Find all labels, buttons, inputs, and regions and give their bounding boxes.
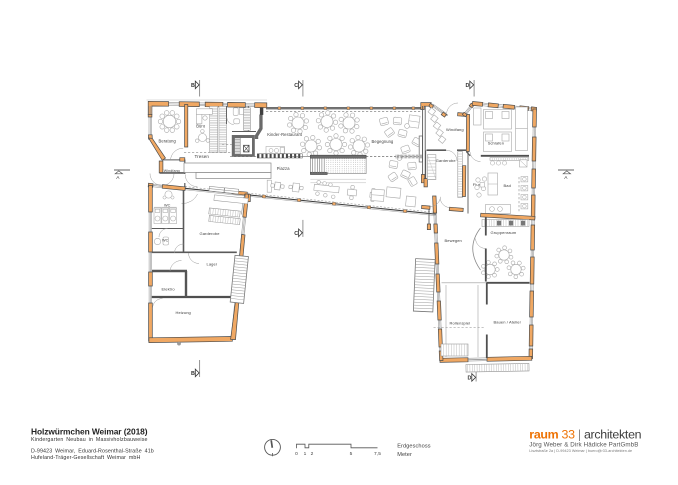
svg-text:Windfang: Windfang	[446, 127, 464, 132]
svg-text:Hufeland-Träger-Gesellschaft: Hufeland-Träger-Gesellschaft Weimar mbH	[31, 455, 140, 461]
svg-text:Lisztstraße 2a | D-99423 Weima: Lisztstraße 2a | D-99423 Weimar | buero@…	[529, 449, 632, 453]
svg-text:raum 33 | architekten: raum 33 | architekten	[529, 427, 641, 441]
svg-text:Holzwürmchen Weimar (2018): Holzwürmchen Weimar (2018)	[31, 426, 148, 436]
svg-text:2: 2	[311, 451, 314, 457]
svg-text:Bewegen: Bewegen	[445, 238, 462, 243]
svg-text:Jörg Weber & Dirk Hädicke Part: Jörg Weber & Dirk Hädicke PartGmbB	[529, 441, 638, 448]
svg-text:Bauen / Atelier: Bauen / Atelier	[494, 319, 522, 324]
svg-text:Meter: Meter	[397, 452, 412, 458]
svg-text:Rollenspiel: Rollenspiel	[450, 320, 471, 325]
svg-text:Begegnung: Begegnung	[372, 139, 394, 144]
svg-text:Windfang: Windfang	[164, 169, 180, 173]
svg-text:D: D	[466, 83, 470, 89]
svg-text:C: C	[294, 83, 298, 89]
svg-text:Garderobe: Garderobe	[200, 231, 221, 236]
svg-text:WC: WC	[164, 203, 171, 207]
svg-text:Kinder-Restaurant: Kinder-Restaurant	[267, 132, 303, 137]
svg-text:Schlafen: Schlafen	[488, 141, 504, 146]
svg-text:Garderobe: Garderobe	[436, 158, 457, 163]
svg-text:WC: WC	[162, 239, 169, 243]
svg-text:B: B	[191, 371, 195, 377]
svg-text:Büro: Büro	[196, 124, 206, 129]
svg-text:5: 5	[350, 451, 353, 457]
svg-text:1: 1	[304, 451, 307, 457]
svg-text:Beratung: Beratung	[159, 138, 177, 143]
svg-text:Piazza: Piazza	[277, 166, 291, 171]
svg-text:0: 0	[295, 451, 298, 457]
svg-text:Kindergarten Neubau in Massivh: Kindergarten Neubau in Massivholzbauweis…	[31, 437, 148, 443]
svg-text:D: D	[468, 376, 472, 382]
svg-text:Gruppenraum: Gruppenraum	[491, 230, 517, 235]
svg-text:7,5: 7,5	[374, 451, 381, 457]
svg-text:Heizung: Heizung	[176, 310, 191, 315]
svg-text:B: B	[191, 83, 195, 89]
svg-text:Lager: Lager	[207, 261, 218, 266]
svg-text:D-99423 Weimar, Eduard-Rosen: D-99423 Weimar, Eduard-Rosenthal-Straße …	[31, 448, 154, 454]
svg-text:Elektro: Elektro	[162, 287, 176, 292]
svg-text:Bad: Bad	[504, 183, 511, 188]
svg-text:C: C	[294, 231, 298, 237]
svg-text:Erdgeschoss: Erdgeschoss	[397, 443, 431, 449]
svg-text:Tresen: Tresen	[195, 154, 210, 159]
